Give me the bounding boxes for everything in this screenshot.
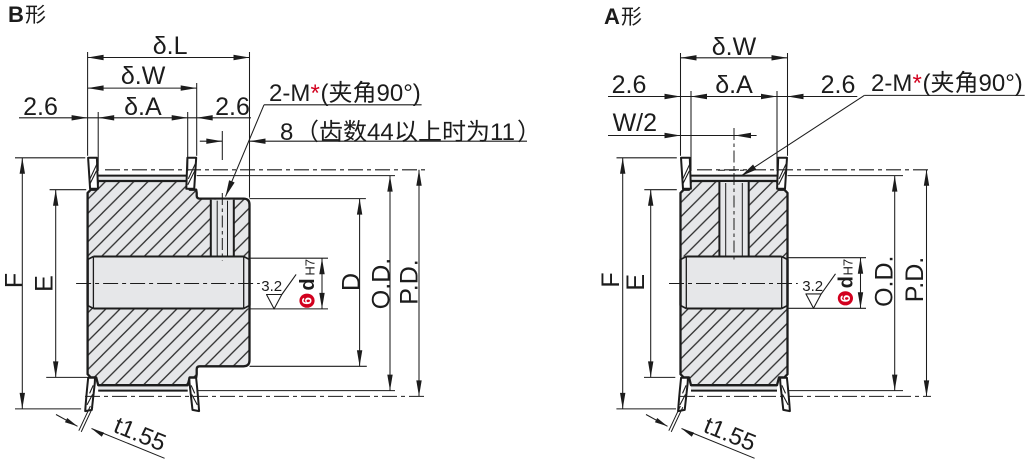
svg-text:*: *	[913, 70, 922, 97]
svg-text:d: d	[835, 276, 857, 288]
svg-text:6: 6	[300, 297, 315, 305]
svg-text:E: E	[622, 274, 650, 291]
svg-text:(: (	[923, 70, 931, 97]
svg-text:(: (	[321, 80, 329, 107]
svg-text:11: 11	[490, 119, 515, 146]
svg-text:2-M: 2-M	[269, 80, 310, 107]
svg-text:O.D.: O.D.	[368, 258, 396, 309]
svg-text:δ.L: δ.L	[153, 32, 188, 60]
svg-text:3.2: 3.2	[261, 278, 282, 295]
svg-text:2.6: 2.6	[821, 71, 856, 99]
svg-text:A: A	[604, 4, 620, 29]
svg-text:3.2: 3.2	[802, 278, 823, 295]
svg-text:2.6: 2.6	[215, 93, 250, 121]
svg-text:δ.W: δ.W	[121, 62, 166, 90]
svg-text:6: 6	[838, 294, 853, 302]
svg-text:δ.W: δ.W	[712, 33, 757, 61]
svg-text:90°): 90°)	[377, 80, 421, 107]
svg-text:H7: H7	[840, 259, 855, 276]
svg-text:B: B	[8, 2, 24, 27]
svg-text:E: E	[31, 275, 59, 292]
svg-text:*: *	[311, 80, 320, 107]
svg-text:44: 44	[367, 119, 394, 146]
svg-text:P.D.: P.D.	[901, 257, 929, 302]
svg-text:W/2: W/2	[613, 109, 657, 137]
svg-text:F: F	[597, 272, 625, 287]
svg-text:d: d	[297, 278, 319, 290]
svg-text:2.6: 2.6	[612, 71, 647, 99]
svg-text:D: D	[338, 273, 366, 291]
svg-text:δ.A: δ.A	[715, 71, 753, 99]
svg-text:F: F	[1, 273, 29, 288]
svg-text:2-M: 2-M	[871, 70, 912, 97]
svg-text:2.6: 2.6	[23, 93, 58, 121]
svg-text:90°): 90°)	[979, 70, 1023, 97]
svg-text:P.D.: P.D.	[396, 259, 424, 304]
svg-text:H7: H7	[303, 259, 318, 276]
svg-text:O.D.: O.D.	[871, 255, 899, 306]
svg-text:8: 8	[280, 119, 293, 146]
svg-text:δ.A: δ.A	[124, 93, 162, 121]
